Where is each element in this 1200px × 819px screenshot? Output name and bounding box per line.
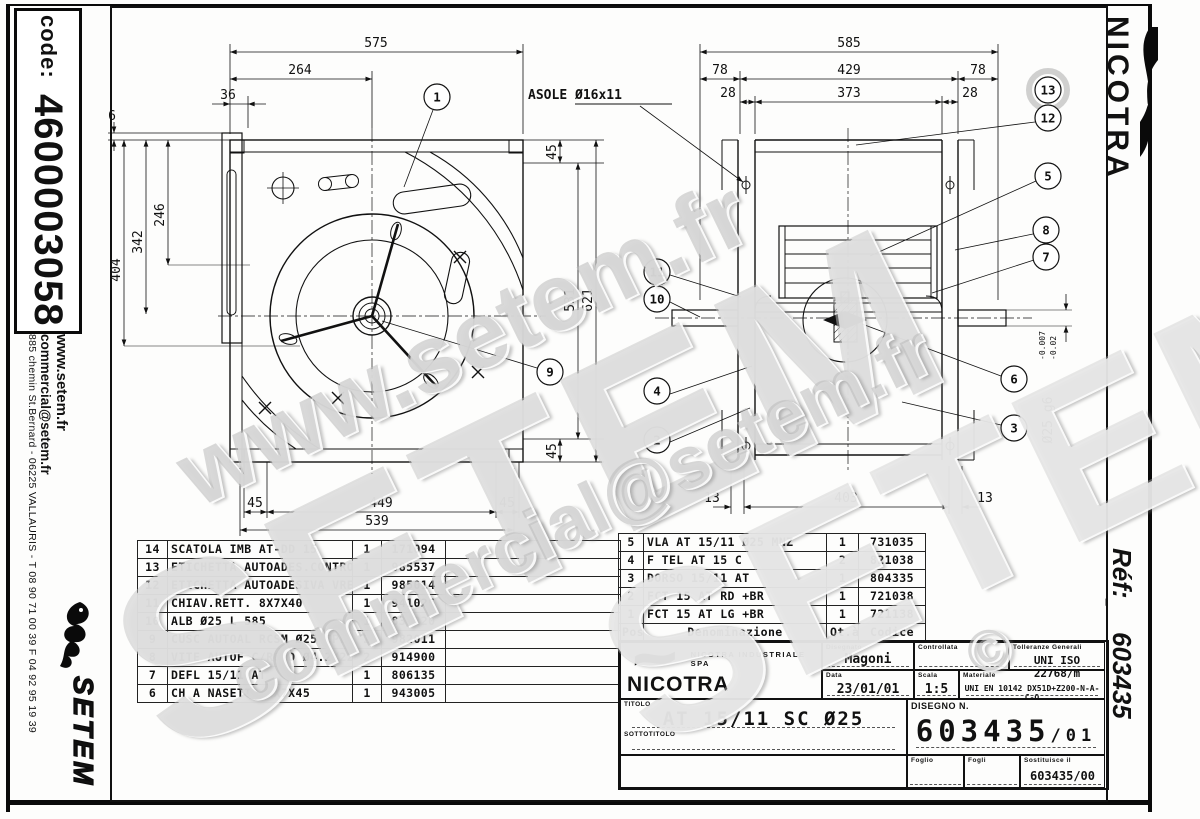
- svg-text:7: 7: [1042, 250, 1050, 265]
- svg-text:45: 45: [247, 496, 263, 511]
- svg-text:11: 11: [649, 265, 664, 280]
- svg-text:373: 373: [837, 86, 860, 101]
- svg-text:449: 449: [369, 496, 392, 511]
- sheet-cell: Foglio: [907, 755, 964, 788]
- nicotra-wave-icon: [625, 647, 685, 671]
- table-row: 5VLA AT 15/11 Ø25 MNZ1731035: [619, 534, 926, 552]
- parts-table-right: 5VLA AT 15/11 Ø25 MNZ1731035 4F TEL AT 1…: [618, 533, 926, 642]
- table-row: 2FCT 15 AT RD +BR1721038: [619, 588, 926, 606]
- material-cell: Materiale UNI EN 10142 DX51D+Z200-N-A-C-…: [959, 670, 1105, 699]
- svg-text:3: 3: [1010, 421, 1018, 436]
- front-view: [218, 128, 546, 474]
- title-block-logo-cell: NICOTRA INDUSTRIALE SPA NICOTRA: [620, 642, 822, 699]
- svg-text:28: 28: [962, 86, 978, 101]
- replaces-value: 603435/00: [1021, 769, 1104, 783]
- title-value: AT 15/11 SC Ø25: [621, 708, 906, 730]
- replaces-cell: Sostituisce il 603435/00: [1020, 755, 1105, 788]
- subtitle-value: [621, 736, 906, 752]
- svg-text:28: 28: [720, 86, 736, 101]
- title-cell: TITOLO AT 15/11 SC Ø25 SOTTOTITOLO: [620, 699, 907, 755]
- svg-text:585: 585: [837, 36, 860, 51]
- svg-text:-0.007: -0.007: [1038, 331, 1047, 360]
- drawing-number-value: 603435/01: [908, 714, 1104, 750]
- svg-text:531: 531: [563, 288, 578, 311]
- table-row: 6CH A NASETTO 8X7X451943005: [138, 685, 621, 703]
- svg-text:403: 403: [834, 491, 857, 506]
- notes-cell: [620, 755, 907, 788]
- svg-text:78: 78: [712, 63, 728, 78]
- table-row: 4F TEL AT 15 C2821038: [619, 552, 926, 570]
- svg-text:2: 2: [653, 433, 661, 448]
- material-label: Materiale: [963, 672, 996, 679]
- date-cell: Data 23/01/01: [822, 670, 914, 699]
- sheets-label: Fogli: [968, 757, 986, 764]
- svg-text:36: 36: [220, 88, 236, 103]
- scale-cell: Scala 1:5: [914, 670, 959, 699]
- drawn-by-value: Magoni: [823, 652, 913, 667]
- brand-wordmark: NICOTRA: [627, 673, 730, 697]
- svg-text:4: 4: [653, 384, 661, 399]
- svg-text:429: 429: [837, 63, 860, 78]
- side-view-dim-labels: 585 78 429 78 28 373 28 13 403 13 ASOLE …: [528, 36, 1058, 506]
- drawing-number-cell: DISEGNO N. 603435/01: [907, 699, 1105, 755]
- svg-text:12: 12: [1040, 111, 1055, 126]
- svg-text:6: 6: [108, 109, 116, 124]
- svg-text:10: 10: [649, 292, 664, 307]
- svg-text:246: 246: [153, 203, 168, 226]
- table-row: 11CHIAV.RETT. 8X7X401941026: [138, 595, 621, 613]
- drawn-by-label: Disegnato: [826, 644, 862, 651]
- table-row: 7DEFL 15/11 AT1806135: [138, 667, 621, 685]
- svg-text:45: 45: [499, 496, 515, 511]
- table-row: 14SCATOLA IMB AT-DD 151171094: [138, 541, 621, 559]
- table-row: 12ETICHETTA AUTOADESIVA VRE1985014: [138, 577, 621, 595]
- title-label: TITOLO: [624, 701, 651, 708]
- svg-text:-0.02: -0.02: [1049, 336, 1058, 360]
- svg-text:621: 621: [581, 288, 596, 311]
- setem-logo-icon: SETEM: [50, 598, 98, 798]
- svg-text:1: 1: [433, 90, 441, 105]
- svg-text:6: 6: [1010, 372, 1018, 387]
- nicotra-wave-icon: [1128, 22, 1168, 162]
- table-row: 3DORSO 15/11 AT1804335: [619, 570, 926, 588]
- svg-text:ASOLE Ø16x11: ASOLE Ø16x11: [528, 88, 622, 103]
- svg-text:5: 5: [1044, 169, 1052, 184]
- svg-text:Ø25 g6: Ø25 g6: [1041, 397, 1056, 444]
- svg-text:13: 13: [1040, 83, 1055, 98]
- svg-text:9: 9: [546, 365, 554, 380]
- svg-text:264: 264: [288, 63, 312, 78]
- sheet-label: Foglio: [911, 757, 934, 764]
- table-row: 8VITE AUTOF C/ROND Ø4.2X222914900: [138, 649, 621, 667]
- side-view-balloons: 13 12 5 8 7 11 10 4 2 6 3: [644, 71, 1067, 453]
- scale-label: Scala: [918, 672, 938, 679]
- checked-by-cell: Controllata: [914, 642, 1009, 670]
- svg-text:13: 13: [977, 491, 993, 506]
- svg-text:78: 78: [970, 63, 986, 78]
- svg-text:575: 575: [364, 36, 387, 51]
- date-label: Data: [826, 672, 842, 679]
- svg-text:539: 539: [365, 514, 388, 529]
- tolerance-label: Tolleranze Generali: [1013, 644, 1082, 651]
- svg-text:342: 342: [131, 230, 146, 253]
- drawing-sheet: code: 4600003058 www.setem.fr commercial…: [0, 0, 1200, 819]
- balloon-1: 1: [404, 84, 450, 187]
- svg-text:45: 45: [545, 443, 560, 459]
- table-row: 9CUSC AUTOAL RCSM Ø25 CPL2982011: [138, 631, 621, 649]
- table-row: 1FCT 15 AT LG +BR1721138: [619, 606, 926, 624]
- table-row: 10ALB Ø25 L 5851830220: [138, 613, 621, 631]
- drawing-number-label: DISEGNO N.: [911, 701, 969, 711]
- date-value: 23/01/01: [823, 682, 913, 697]
- setem-logo-text: SETEM: [68, 676, 98, 787]
- svg-text:8: 8: [1042, 223, 1050, 238]
- drawn-by-cell: Disegnato Magoni: [822, 642, 914, 670]
- replaces-label: Sostituisce il: [1024, 757, 1071, 764]
- svg-text:13: 13: [704, 491, 720, 506]
- checked-by-label: Controllata: [918, 644, 958, 651]
- parts-table-left: 14SCATOLA IMB AT-DD 151171094 13ETICHETT…: [137, 540, 621, 703]
- title-block: NICOTRA INDUSTRIALE SPA NICOTRA Disegnat…: [618, 640, 1109, 790]
- table-row: 13ETICHETTA AUTOADES.CONTROLLO1985537: [138, 559, 621, 577]
- company-name: NICOTRA INDUSTRIALE SPA: [691, 650, 819, 668]
- scale-value: 1:5: [915, 682, 958, 697]
- svg-text:45: 45: [545, 144, 560, 160]
- side-view: [655, 128, 1032, 472]
- table-header-row: Pos.DenominazioneQt.àCodice: [619, 624, 926, 642]
- tolerance-cell: Tolleranze Generali UNI ISO 22768/m: [1009, 642, 1105, 670]
- svg-text:404: 404: [109, 258, 124, 282]
- sheets-cell: Fogli: [964, 755, 1020, 788]
